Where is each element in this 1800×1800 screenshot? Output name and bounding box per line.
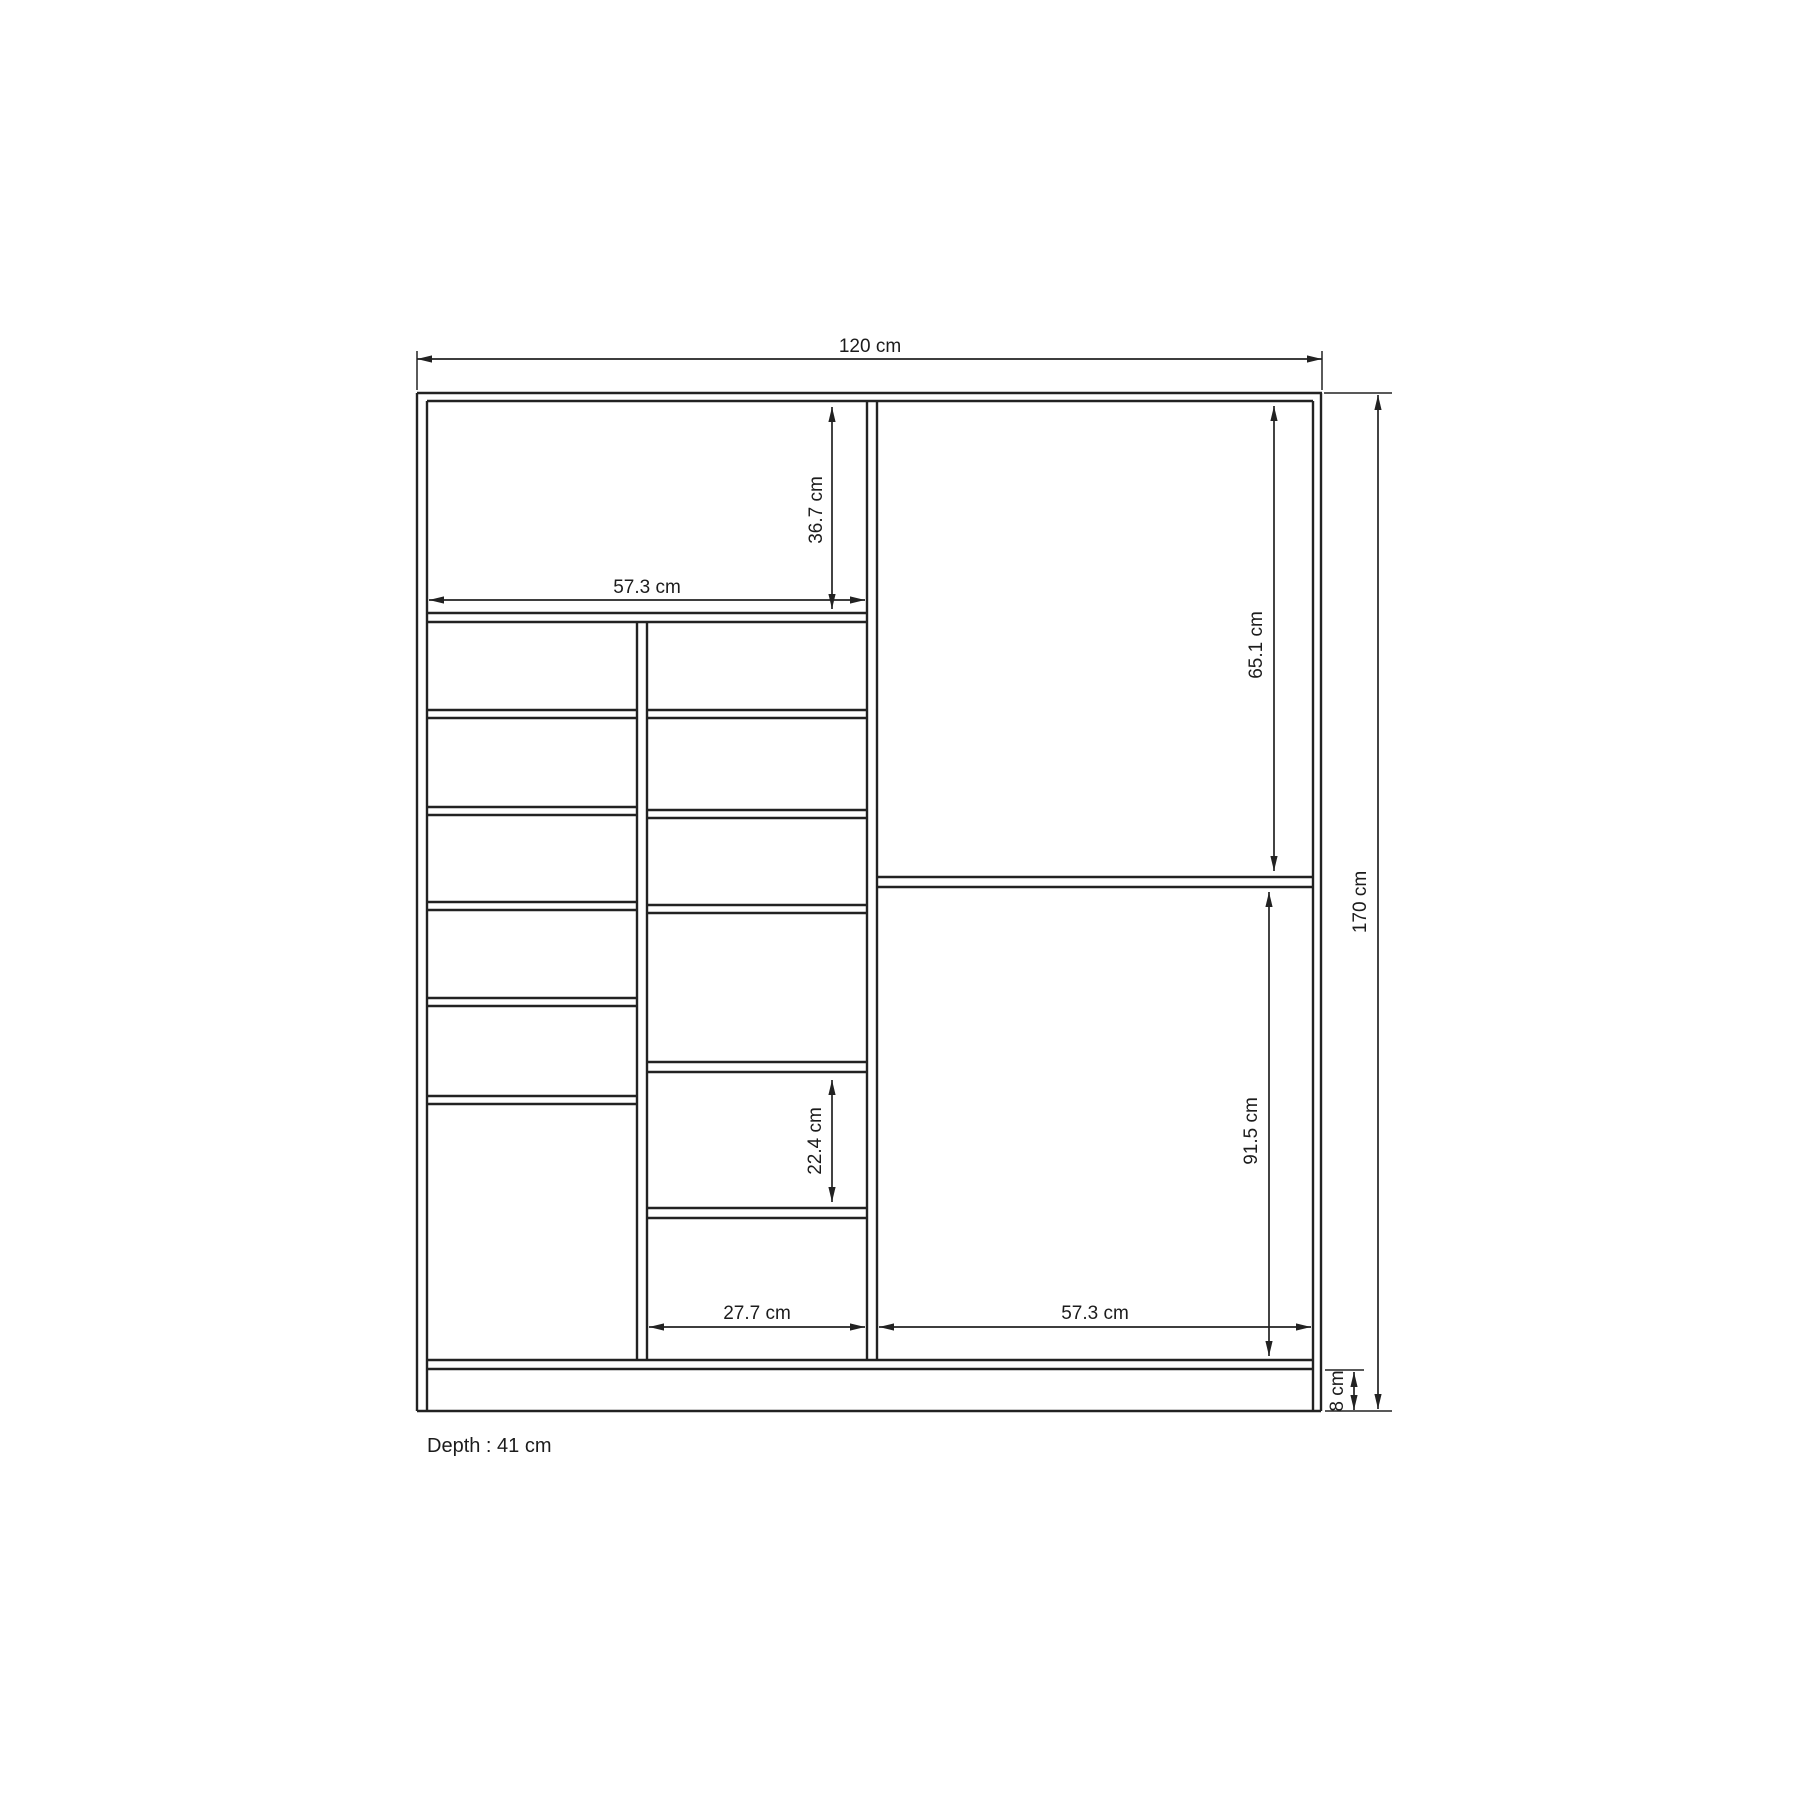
left-section-top-shelf: [427, 613, 867, 622]
right-side-panel: [1313, 393, 1321, 1411]
cad-drawing-canvas: 120 cm 57.3 cm 36.7 cm 65.1 cm 22.4 cm: [0, 0, 1800, 1800]
right-section-shelf: [877, 877, 1313, 887]
right-column-shelves: [647, 710, 867, 1218]
depth-note: Depth : 41 cm: [427, 1435, 552, 1457]
dim-label-base-height: 8 cm: [1327, 1370, 1348, 1411]
dim-overall-height: 170 cm: [1324, 393, 1392, 1411]
bottom-panel: [427, 1360, 1313, 1369]
dim-right-upper-height: 65.1 cm: [1246, 406, 1274, 871]
dim-right-lower-height: 91.5 cm: [1241, 892, 1269, 1356]
dimension-annotations: 120 cm 57.3 cm 36.7 cm 65.1 cm 22.4 cm: [417, 336, 1392, 1457]
dim-overall-width: 120 cm: [417, 336, 1322, 390]
dim-label-right-lower-height: 91.5 cm: [1241, 1097, 1262, 1165]
dim-right-lower-width: 57.3 cm: [879, 1303, 1311, 1327]
dim-label-upper-left-width: 57.3 cm: [613, 577, 681, 598]
left-side-panel: [417, 393, 427, 1411]
dim-label-overall-width: 120 cm: [839, 336, 901, 357]
dim-label-cubby-height: 22.4 cm: [805, 1107, 826, 1175]
wardrobe-dimension-diagram: 120 cm 57.3 cm 36.7 cm 65.1 cm 22.4 cm: [0, 0, 1800, 1800]
dim-label-right-lower-width: 57.3 cm: [1061, 1303, 1129, 1324]
dim-cubby-width: 27.7 cm: [649, 1303, 865, 1327]
dim-upper-left-width: 57.3 cm: [429, 577, 865, 600]
dim-base-height: 8 cm: [1325, 1370, 1364, 1412]
dim-label-cubby-width: 27.7 cm: [723, 1303, 791, 1324]
top-panel: [417, 393, 1322, 401]
dim-label-right-upper-height: 65.1 cm: [1246, 611, 1267, 679]
center-divider-panel: [867, 401, 877, 1360]
dim-label-upper-left-height: 36.7 cm: [806, 476, 827, 544]
cabinet-structure: [417, 393, 1322, 1411]
left-grid-divider-panel: [637, 622, 647, 1360]
dim-cubby-height: 22.4 cm: [805, 1080, 832, 1202]
dim-upper-left-height: 36.7 cm: [806, 407, 832, 609]
dim-label-overall-height: 170 cm: [1350, 871, 1371, 933]
left-column-shelves: [427, 710, 637, 1104]
